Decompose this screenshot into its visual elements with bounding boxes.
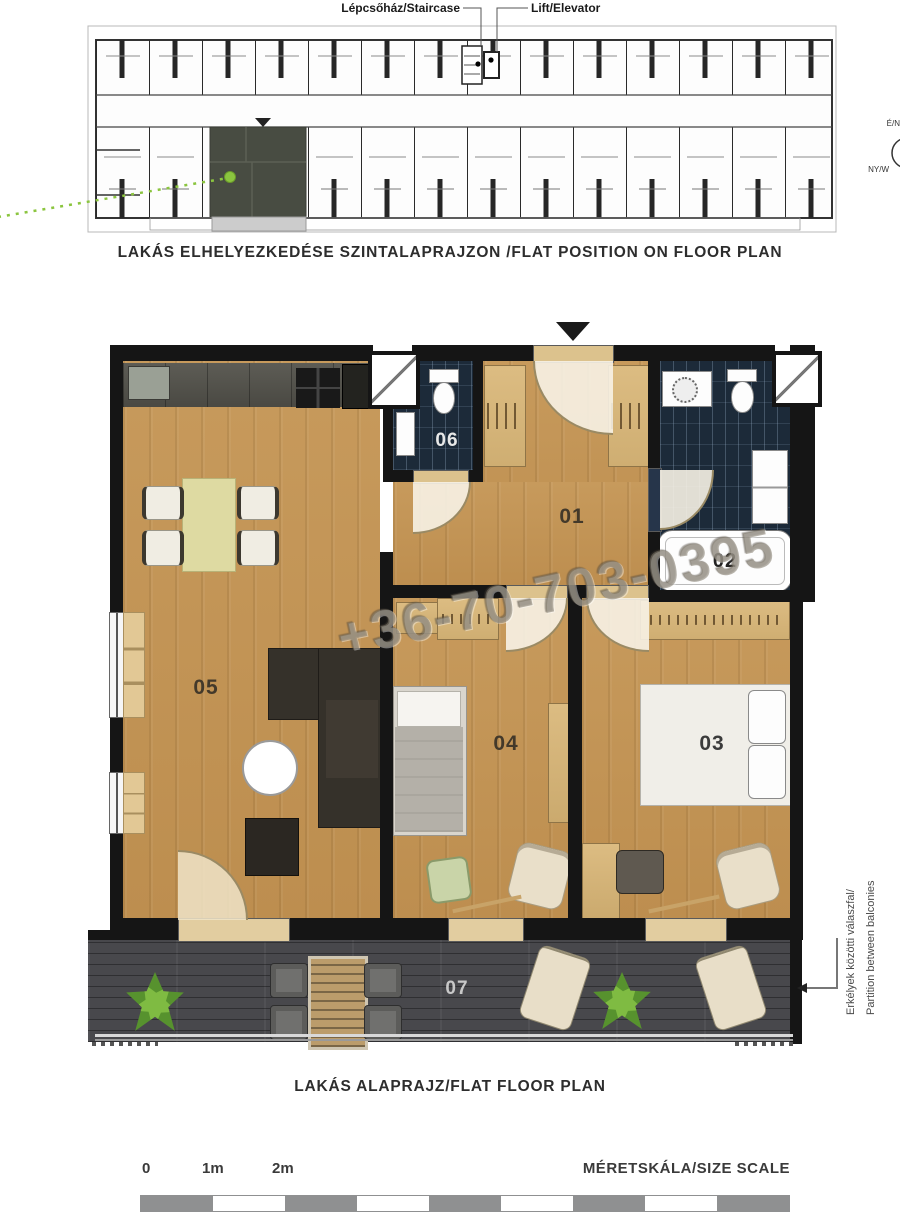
wc-sink xyxy=(396,412,415,456)
lower-units-pattern xyxy=(96,127,832,218)
room-label-wc: 06 xyxy=(435,430,458,452)
bedroom3-wardrobe xyxy=(640,600,790,640)
room-label-bedroom-right: 03 xyxy=(699,732,724,756)
highlighted-flat-balcony xyxy=(212,217,306,231)
balcony-door-bedroom4 xyxy=(448,918,524,942)
balcony-railing xyxy=(95,1034,793,1037)
partition-note-hu: Erkélyek közötti válaszfal/ xyxy=(843,755,861,1015)
wall xyxy=(568,585,582,918)
wall xyxy=(110,833,123,930)
staircase-label: Lépcsőház/Staircase xyxy=(341,1,460,15)
flat-marker-dot xyxy=(225,172,236,183)
wall xyxy=(473,361,483,482)
pillow xyxy=(397,691,461,727)
leader-line xyxy=(836,938,838,988)
partition-note-en: Partition between balconies xyxy=(863,755,881,1015)
partition-note: Erkélyek közötti válaszfal/ Partition be… xyxy=(843,755,880,1015)
sofa-cushion xyxy=(326,700,378,778)
desk-chair-green xyxy=(425,855,473,904)
room-label-hallway: 01 xyxy=(559,505,584,529)
elevator-dot xyxy=(475,61,480,66)
bath-basin xyxy=(672,377,698,403)
desk-chair-dark xyxy=(616,850,664,894)
hall-wardrobe xyxy=(484,365,526,467)
room-label-balcony: 07 xyxy=(445,978,468,1000)
scale-bar-segments xyxy=(140,1195,790,1212)
elevator-box xyxy=(484,52,499,78)
scale-tick-2m: 2m xyxy=(272,1160,294,1177)
stove xyxy=(296,368,340,408)
balcony-door-living xyxy=(178,918,290,942)
bath-toilet xyxy=(731,381,754,413)
balcony-railing xyxy=(95,1039,793,1041)
flat-position-caption: LAKÁS ELHELYEZKEDÉSE SZINTALAPRAJZON /FL… xyxy=(0,244,900,262)
blanket xyxy=(395,727,463,832)
scale-tick-1m: 1m xyxy=(202,1160,224,1177)
bedroom4-desk xyxy=(548,703,570,823)
leader-arrow-icon xyxy=(797,983,807,993)
highlighted-flat xyxy=(210,127,306,217)
railing-dots xyxy=(735,1042,793,1046)
wall xyxy=(110,718,123,774)
scale-title: MÉRETSKÁLA/SIZE SCALE xyxy=(583,1160,790,1177)
room-label-living: 05 xyxy=(193,676,218,700)
balcony-chair xyxy=(270,963,308,998)
dining-chair xyxy=(142,486,184,520)
window-sill xyxy=(123,612,145,718)
leader-line xyxy=(806,987,838,989)
elevator-label: Lift/Elevator xyxy=(531,1,601,15)
ottoman xyxy=(245,818,299,876)
wall xyxy=(110,345,373,361)
coffee-table xyxy=(242,740,298,796)
bedroom3-desk xyxy=(582,843,620,919)
balcony-window-icon xyxy=(772,351,822,407)
dining-chair xyxy=(142,530,184,566)
railing-dots xyxy=(92,1042,158,1046)
balcony-chair xyxy=(364,963,402,998)
compass-north-label: É/N xyxy=(887,119,900,128)
scale-bar: 0 1m 2m MÉRETSKÁLA/SIZE SCALE xyxy=(140,1160,790,1216)
compass-west-label: NY/W xyxy=(868,165,889,174)
pillow xyxy=(748,690,786,744)
wall xyxy=(790,602,803,932)
compass-icon xyxy=(892,138,900,168)
hall-wardrobe xyxy=(608,365,650,467)
kitchen-sink xyxy=(128,366,170,400)
flat-floor-plan-caption: LAKÁS ALAPRAJZ/FLAT FLOOR PLAN xyxy=(0,1078,900,1096)
window-sill xyxy=(123,772,145,834)
balcony-deck xyxy=(88,932,793,1042)
wall xyxy=(612,345,775,361)
bath-cabinet xyxy=(752,450,788,524)
balcony-wall xyxy=(88,930,110,940)
dining-table xyxy=(182,478,236,572)
dining-chair xyxy=(237,530,279,566)
room-label-bedroom-middle: 04 xyxy=(493,732,518,756)
balcony-window-icon xyxy=(368,351,420,409)
pillow xyxy=(748,745,786,799)
balcony-door-bedroom3 xyxy=(645,918,727,942)
wall xyxy=(412,345,533,361)
dining-chair xyxy=(237,486,279,520)
wc-toilet-tank xyxy=(429,369,459,383)
wall xyxy=(110,345,123,612)
floor-plan-sheet: Lépcsőház/Staircase Lift/Elevator É/N NY… xyxy=(0,0,900,1228)
entrance-arrow-icon xyxy=(556,322,590,341)
scale-tick-0: 0 xyxy=(142,1160,150,1177)
elevator-dot xyxy=(488,57,493,62)
wc-toilet xyxy=(433,382,455,414)
